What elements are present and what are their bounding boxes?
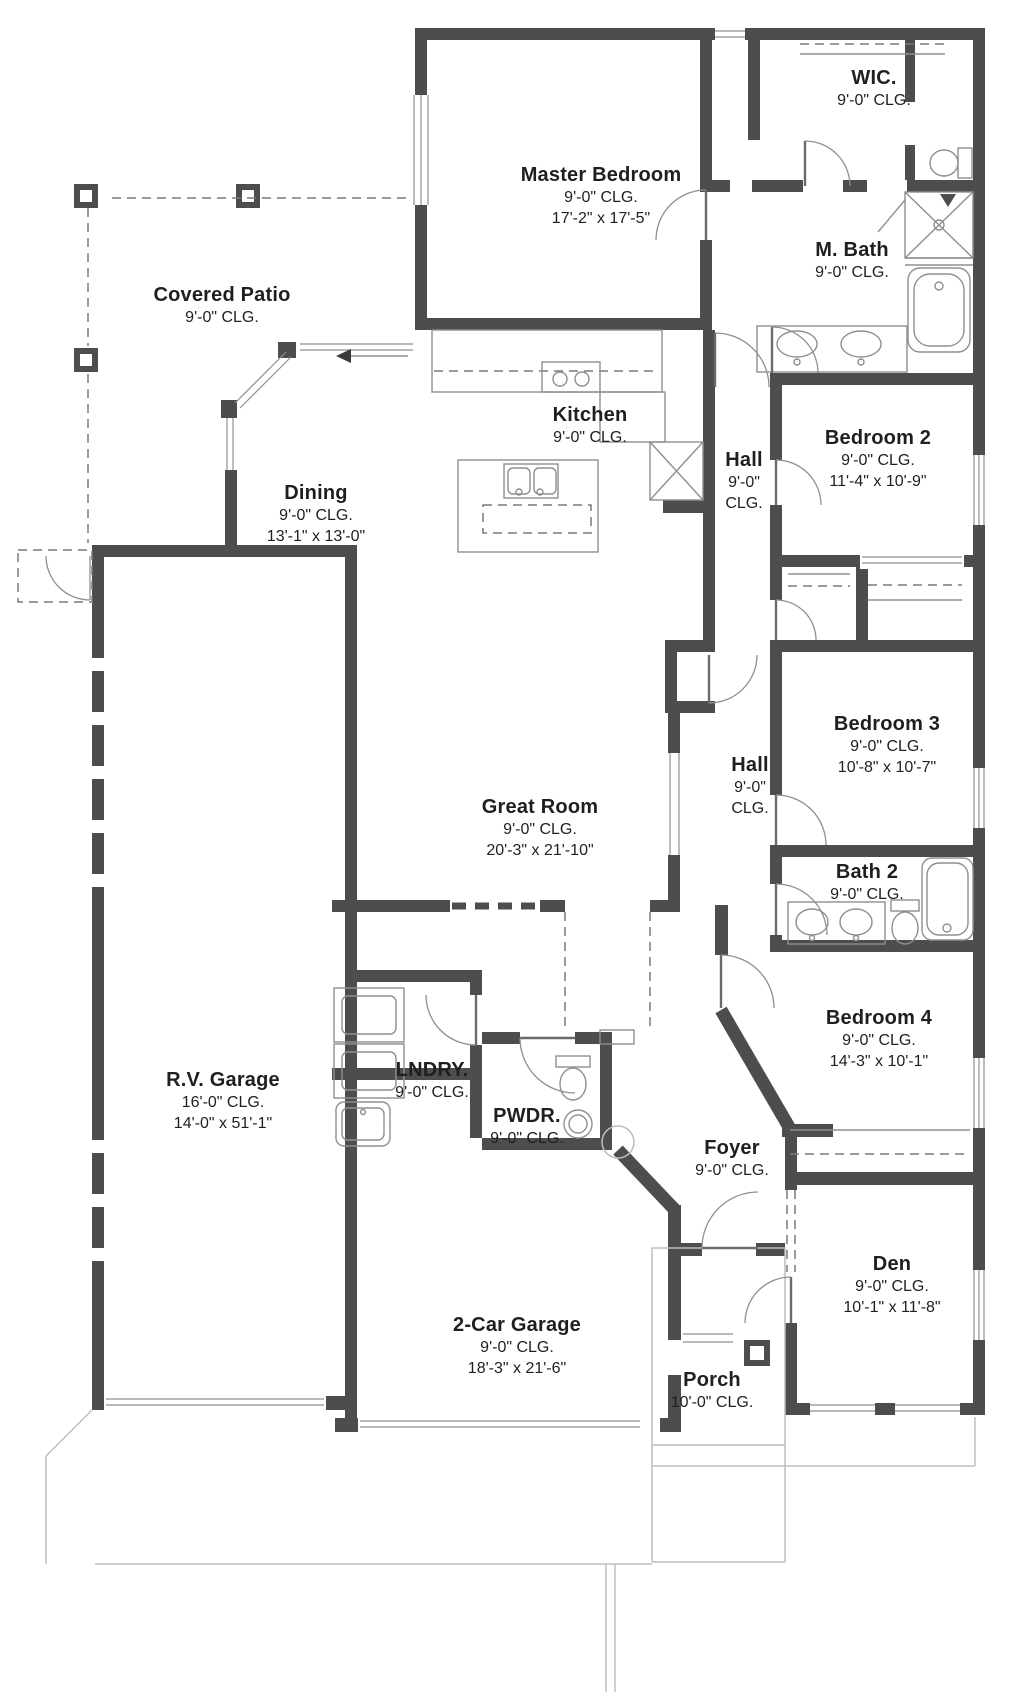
washer-dryer-icon: [334, 988, 404, 1098]
kitchen-counter-icon: [432, 330, 665, 442]
bathtub-icon: [905, 258, 973, 352]
room-ceiling: 9'-0" CLG.: [731, 777, 768, 819]
room-dims: 10'-1" x 11'-8": [843, 1297, 940, 1318]
sliding-door-arrow-icon: [336, 349, 351, 363]
cooktop-icon: [542, 362, 600, 392]
room-name: Den: [843, 1252, 940, 1276]
room-dims: 17'-2" x 17'-5": [521, 208, 682, 229]
room-dims: 11'-4" x 10'-9": [825, 471, 931, 492]
room-name: Master Bedroom: [521, 163, 682, 187]
room-name: 2-Car Garage: [453, 1313, 581, 1337]
room-name: M. Bath: [815, 238, 889, 262]
room-label-covered-patio: Covered Patio 9'-0" CLG.: [153, 283, 290, 328]
room-name: Covered Patio: [153, 283, 290, 307]
laundry-sink-icon: [336, 1102, 390, 1146]
double-vanity-icon: [757, 326, 907, 372]
room-ceiling: 9'-0" CLG.: [815, 262, 889, 283]
room-ceiling: 9'-0" CLG.: [830, 884, 904, 905]
room-label-den: Den 9'-0" CLG. 10'-1" x 11'-8": [843, 1252, 940, 1318]
room-name: Hall: [731, 753, 768, 777]
room-name: Foyer: [695, 1136, 769, 1160]
room-ceiling: 9'-0" CLG.: [153, 307, 290, 328]
site-lines-layer: [46, 1410, 975, 1692]
room-dims: 13'-1" x 13'-0": [267, 526, 365, 547]
patio-posts: [74, 184, 770, 1366]
room-name: WIC.: [837, 66, 911, 90]
room-ceiling: 9'-0" CLG.: [553, 427, 628, 448]
room-label-foyer: Foyer 9'-0" CLG.: [695, 1136, 769, 1181]
room-ceiling: 9'-0" CLG.: [826, 1030, 932, 1051]
bathtub-icon: [922, 858, 973, 940]
room-name: Hall: [725, 448, 762, 472]
room-dims: 14'-3" x 10'-1": [826, 1051, 932, 1072]
room-label-wic: WIC. 9'-0" CLG.: [837, 66, 911, 111]
room-name: Dining: [267, 481, 365, 505]
room-ceiling: 9'-0" CLG.: [695, 1160, 769, 1181]
room-name: PWDR.: [490, 1104, 564, 1128]
room-name: Porch: [671, 1368, 754, 1392]
room-ceiling: 9'-0" CLG.: [267, 505, 365, 526]
room-ceiling: 9'-0" CLG.: [482, 819, 598, 840]
room-label-m-bath: M. Bath 9'-0" CLG.: [815, 238, 889, 283]
room-label-master-bedroom: Master Bedroom 9'-0" CLG. 17'-2" x 17'-5…: [521, 163, 682, 229]
room-ceiling: 10'-0" CLG.: [671, 1392, 754, 1413]
pedestal-sink-icon: [564, 1110, 592, 1138]
shower-head-marker-icon: [940, 194, 956, 207]
room-dims: 18'-3" x 21'-6": [453, 1358, 581, 1379]
room-label-hall-2: Hall 9'-0" CLG.: [731, 753, 768, 819]
room-name: Bath 2: [830, 860, 904, 884]
room-name: Bedroom 4: [826, 1006, 932, 1030]
room-label-two-car-garage: 2-Car Garage 9'-0" CLG. 18'-3" x 21'-6": [453, 1313, 581, 1379]
room-label-pwdr: PWDR. 9'-0" CLG.: [490, 1104, 564, 1149]
double-vanity-icon: [788, 902, 885, 944]
room-ceiling: 9'-0" CLG.: [837, 90, 911, 111]
dashed-lines-layer: [18, 44, 970, 1272]
refrigerator-icon: [650, 442, 703, 500]
room-ceiling: 16'-0" CLG.: [166, 1092, 280, 1113]
room-name: R.V. Garage: [166, 1068, 280, 1092]
toilet-icon: [891, 900, 919, 944]
room-dims: 14'-0" x 51'-1": [166, 1113, 280, 1134]
room-label-porch: Porch 10'-0" CLG.: [671, 1368, 754, 1413]
room-label-hall-1: Hall 9'-0" CLG.: [725, 448, 762, 514]
kitchen-sink-icon: [504, 464, 558, 498]
room-ceiling: 9'-0" CLG.: [453, 1337, 581, 1358]
room-label-bath-2: Bath 2 9'-0" CLG.: [830, 860, 904, 905]
floor-plan-page: Covered Patio 9'-0" CLG. Master Bedroom …: [0, 0, 1026, 1695]
room-name: Bedroom 3: [834, 712, 940, 736]
room-ceiling: 9'-0" CLG.: [725, 472, 762, 514]
room-ceiling: 9'-0" CLG.: [843, 1276, 940, 1297]
room-label-rv-garage: R.V. Garage 16'-0" CLG. 14'-0" x 51'-1": [166, 1068, 280, 1134]
shower-icon: [878, 192, 973, 258]
room-name: Kitchen: [553, 403, 628, 427]
room-label-dining: Dining 9'-0" CLG. 13'-1" x 13'-0": [267, 481, 365, 547]
room-label-lndry: LNDRY. 9'-0" CLG.: [395, 1058, 469, 1103]
room-label-bedroom-4: Bedroom 4 9'-0" CLG. 14'-3" x 10'-1": [826, 1006, 932, 1072]
room-dims: 10'-8" x 10'-7": [834, 757, 940, 778]
toilet-icon: [930, 148, 972, 178]
room-ceiling: 9'-0" CLG.: [834, 736, 940, 757]
room-name: LNDRY.: [395, 1058, 469, 1082]
room-name: Bedroom 2: [825, 426, 931, 450]
room-label-kitchen: Kitchen 9'-0" CLG.: [553, 403, 628, 448]
room-label-bedroom-3: Bedroom 3 9'-0" CLG. 10'-8" x 10'-7": [834, 712, 940, 778]
kitchen-island-icon: [458, 460, 598, 552]
room-label-great-room: Great Room 9'-0" CLG. 20'-3" x 21'-10": [482, 795, 598, 861]
room-label-bedroom-2: Bedroom 2 9'-0" CLG. 11'-4" x 10'-9": [825, 426, 931, 492]
room-ceiling: 9'-0" CLG.: [825, 450, 931, 471]
room-dims: 20'-3" x 21'-10": [482, 840, 598, 861]
room-ceiling: 9'-0" CLG.: [395, 1082, 469, 1103]
room-ceiling: 9'-0" CLG.: [521, 187, 682, 208]
room-name: Great Room: [482, 795, 598, 819]
room-ceiling: 9'-0" CLG.: [490, 1128, 564, 1149]
